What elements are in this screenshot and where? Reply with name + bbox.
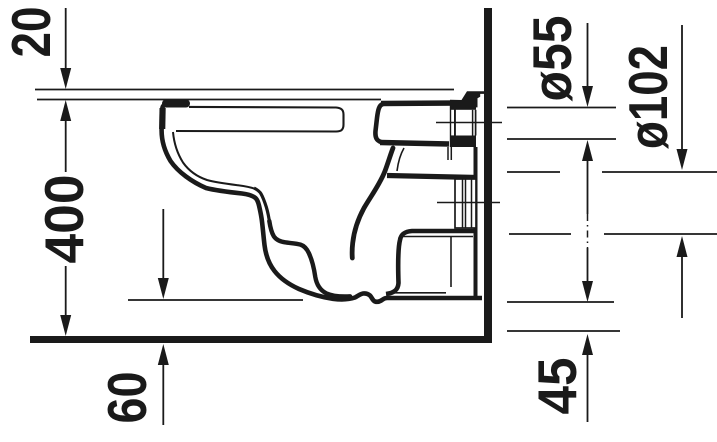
svg-text:400: 400: [33, 175, 95, 264]
svg-text:45: 45: [526, 358, 588, 415]
svg-text:ø55: ø55: [521, 16, 583, 102]
svg-text:60: 60: [96, 372, 158, 424]
svg-text:ø102: ø102: [617, 45, 679, 149]
svg-text:20: 20: [0, 7, 62, 58]
